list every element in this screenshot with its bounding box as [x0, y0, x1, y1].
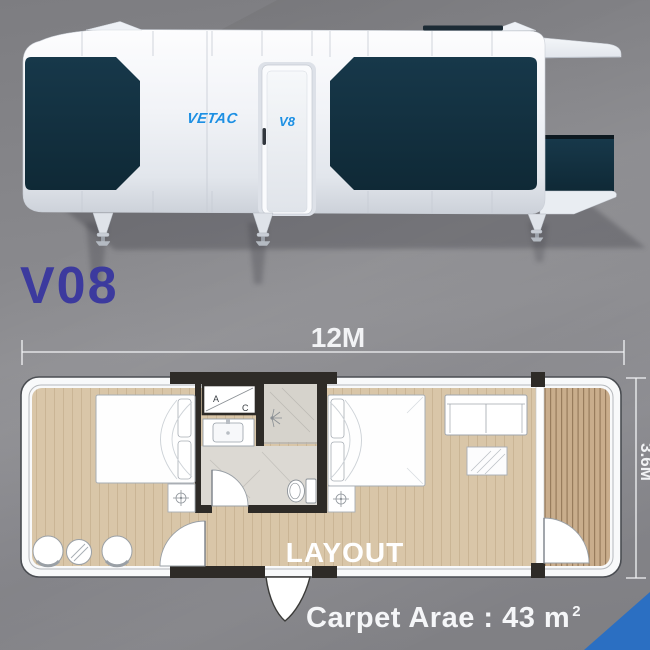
dimension-height: 3.6M — [626, 378, 650, 578]
pillow — [331, 442, 344, 481]
height-dimension-label: 3.6M — [637, 443, 650, 481]
bathroom-right-wall — [317, 384, 327, 512]
entrance-door: V8 — [258, 62, 316, 216]
carpet-area-text: Carpet Arae : 43 m — [306, 602, 570, 634]
sink — [203, 419, 254, 446]
house-render: V8 VETAC — [23, 22, 646, 285]
bed — [96, 395, 195, 483]
roof-fin — [86, 22, 142, 31]
layout-label: LAYOUT — [286, 537, 405, 568]
bathroom-bottom-wall — [248, 505, 327, 513]
deck-divider-wall — [536, 384, 544, 566]
door-handle — [263, 128, 267, 145]
model-label: V08 — [20, 256, 119, 316]
carpet-area-superscript: 2 — [572, 603, 581, 620]
scene: V8 VETAC — [0, 0, 650, 650]
deck-railing-panel — [540, 139, 614, 191]
deck-railing-cap — [540, 135, 614, 139]
brand-logo: VETAC — [186, 111, 239, 127]
side-table — [67, 540, 92, 565]
dimension-width: 12M — [22, 322, 624, 365]
sofa — [445, 395, 527, 435]
bed — [328, 395, 425, 486]
stool — [102, 536, 132, 566]
ac-letter-c: C — [242, 403, 249, 413]
bathroom-left-wall — [195, 384, 201, 512]
ac-closet: A C — [203, 385, 256, 414]
door-badge: V8 — [279, 114, 296, 129]
pillow — [178, 441, 191, 479]
corner-accent-triangle — [584, 592, 650, 650]
floor-plan: A C — [21, 372, 621, 621]
right-window — [330, 57, 537, 190]
width-dimension-label: 12M — [311, 322, 365, 353]
shower — [264, 384, 317, 443]
rug — [467, 447, 507, 475]
bathroom: A C — [195, 384, 327, 513]
left-window — [25, 57, 140, 190]
stool — [33, 536, 63, 566]
toilet — [288, 479, 317, 503]
nightstand — [328, 486, 355, 512]
roof-solar-strip — [423, 26, 503, 31]
nightstand — [168, 484, 195, 512]
entry-door-flap — [266, 577, 310, 621]
ac-letter-a: A — [213, 394, 219, 404]
product-sheet: V8 VETAC — [0, 0, 650, 650]
carpet-area-label: Carpet Arae : 43 m2 — [306, 602, 581, 635]
bathroom-bottom-wall — [195, 505, 212, 513]
deck-skirt — [540, 191, 617, 214]
overhang-underside — [540, 57, 620, 58]
